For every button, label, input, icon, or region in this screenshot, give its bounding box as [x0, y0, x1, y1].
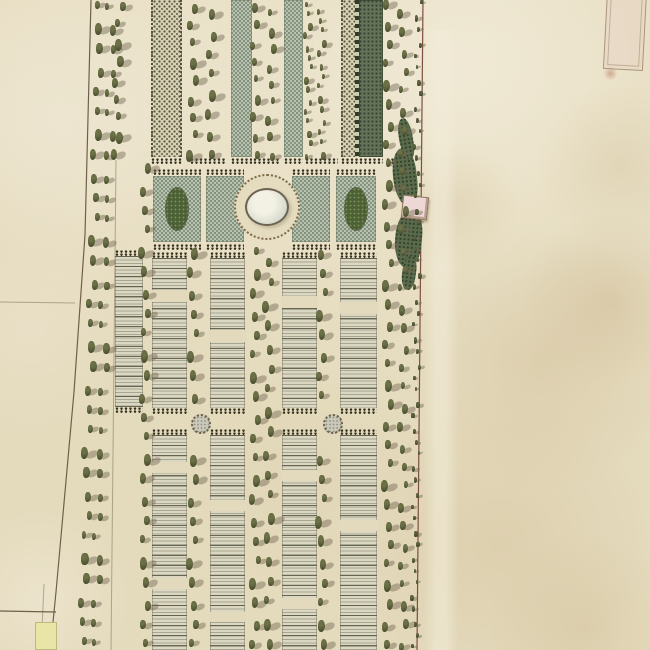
tree: [419, 129, 422, 133]
side-basin: [323, 414, 343, 434]
hedge-cap: [206, 244, 244, 250]
tree: [401, 382, 407, 390]
tree: [206, 50, 213, 60]
tree: [95, 23, 105, 36]
tree: [140, 187, 148, 198]
tree: [105, 195, 111, 204]
tree: [88, 341, 98, 354]
tree: [254, 331, 261, 341]
tree: [417, 171, 421, 177]
tree: [304, 77, 310, 85]
tree: [92, 533, 97, 541]
tree: [192, 394, 200, 405]
tree: [105, 109, 110, 117]
tree: [404, 481, 410, 489]
tree: [308, 55, 313, 61]
tree: [318, 598, 324, 607]
tree: [91, 174, 99, 185]
tree: [99, 427, 104, 435]
tree: [265, 407, 275, 420]
tree: [269, 28, 277, 40]
tree: [400, 445, 407, 455]
tree: [117, 56, 126, 68]
field-line: [74, 235, 85, 392]
tree: [251, 518, 259, 529]
tree: [398, 503, 406, 515]
tree: [403, 544, 410, 554]
tree: [400, 580, 406, 588]
bed-gap: [151, 578, 188, 589]
tree: [186, 558, 196, 571]
tree: [85, 386, 93, 397]
tree: [317, 83, 321, 89]
tree: [414, 569, 418, 574]
tree: [81, 447, 91, 460]
tree: [402, 404, 410, 416]
tree: [97, 555, 105, 567]
tree: [387, 599, 396, 611]
tree: [322, 40, 328, 48]
tree: [412, 466, 417, 473]
tree: [415, 440, 419, 445]
hedge-cap: [336, 244, 376, 250]
tree: [317, 456, 325, 467]
tree: [205, 109, 214, 121]
tree: [254, 20, 262, 31]
tree: [306, 86, 312, 94]
tree: [250, 288, 259, 300]
tree: [264, 619, 274, 632]
tree: [269, 365, 276, 375]
hedge-cap: [253, 158, 280, 164]
tree: [401, 323, 409, 334]
tree: [263, 451, 271, 462]
hedge-cap: [151, 158, 182, 164]
central-basin: [245, 188, 289, 226]
tree: [115, 39, 125, 52]
tree: [103, 237, 111, 249]
bed-hedge-cap: [115, 407, 143, 413]
tree: [144, 516, 151, 526]
orchard-strip-trellis: [151, 0, 182, 157]
hedge-cap: [359, 158, 383, 164]
tree: [98, 68, 106, 79]
tree: [88, 425, 94, 434]
tree: [267, 65, 274, 75]
tree: [384, 580, 394, 593]
parterre-oval: [345, 188, 367, 230]
tree: [383, 140, 390, 150]
tree: [416, 118, 420, 123]
tree: [303, 32, 309, 40]
tree: [104, 151, 111, 162]
tree: [144, 432, 150, 441]
tree: [253, 391, 262, 403]
tree: [193, 474, 202, 486]
tree: [116, 112, 122, 121]
tree: [253, 475, 263, 488]
tree: [188, 498, 196, 509]
tree: [120, 2, 127, 12]
tree: [254, 75, 260, 83]
tree: [410, 595, 415, 602]
tree: [412, 322, 415, 326]
tree: [97, 575, 104, 586]
field-line: [0, 611, 56, 612]
bed-gap: [281, 296, 318, 308]
tree: [140, 557, 150, 570]
tree: [114, 95, 121, 105]
tree: [385, 359, 391, 368]
tree: [142, 206, 149, 216]
tree: [143, 639, 149, 648]
tree: [416, 65, 419, 69]
tree: [399, 86, 405, 94]
tree: [419, 91, 423, 97]
tree: [413, 284, 417, 290]
tree: [93, 193, 100, 203]
tree: [418, 451, 421, 455]
tree: [86, 299, 93, 309]
tree: [253, 453, 259, 462]
tree: [97, 449, 105, 461]
bed-gap: [209, 612, 246, 622]
tree: [268, 9, 274, 17]
tree: [254, 247, 260, 256]
tree: [83, 467, 92, 479]
bed-gap: [281, 470, 318, 481]
tree: [382, 280, 392, 293]
hedge-cap: [336, 169, 376, 175]
tree: [320, 269, 327, 279]
tree: [87, 511, 94, 521]
tree: [110, 25, 118, 37]
tree: [115, 19, 121, 28]
tree: [116, 132, 126, 145]
hedge-cap: [305, 158, 338, 164]
tree: [267, 132, 275, 143]
paper-stain: [535, 80, 650, 250]
tree: [143, 290, 151, 301]
garden-bed-column: [340, 258, 377, 408]
tree: [322, 494, 328, 503]
tree: [254, 621, 262, 632]
tree: [381, 480, 391, 493]
tree: [403, 619, 411, 630]
tree: [253, 537, 260, 547]
tree: [211, 32, 219, 43]
tree: [397, 9, 405, 21]
tree: [417, 311, 421, 316]
tree: [416, 493, 420, 499]
tree: [321, 27, 325, 33]
tree: [384, 499, 393, 511]
tree: [192, 4, 200, 15]
hedge-cap: [190, 158, 226, 164]
tree: [88, 235, 98, 248]
bed-gap: [339, 302, 378, 314]
tree: [105, 215, 110, 223]
paper-stain: [520, 210, 650, 390]
tree: [249, 494, 258, 506]
tree: [97, 469, 104, 480]
tree: [194, 329, 200, 338]
tree: [249, 640, 256, 650]
tree: [266, 557, 274, 568]
garden-bed-column: [152, 258, 187, 408]
tree: [382, 340, 389, 350]
tree: [317, 50, 323, 58]
tree: [105, 3, 110, 11]
tree: [414, 531, 419, 538]
tree: [402, 50, 409, 60]
tree: [190, 370, 199, 382]
tree: [92, 280, 100, 291]
orchard-strip-stipple: [231, 0, 252, 157]
tree: [190, 455, 200, 468]
tree: [189, 639, 195, 648]
tree: [308, 23, 314, 31]
tree: [103, 343, 111, 355]
tree: [388, 399, 397, 411]
tree: [416, 633, 420, 638]
tree: [256, 556, 262, 565]
bed-hedge-cap: [282, 408, 317, 414]
paper-stain: [345, 390, 650, 650]
tree: [110, 131, 118, 143]
tree: [415, 155, 419, 161]
tree: [317, 9, 322, 16]
tree: [141, 413, 148, 423]
tree: [95, 213, 101, 222]
tree: [255, 95, 263, 107]
tree: [309, 140, 315, 148]
tree: [193, 620, 200, 630]
tree: [188, 97, 196, 108]
tree: [90, 361, 99, 373]
tree: [78, 598, 86, 609]
paper-stain: [0, 505, 135, 650]
tree: [111, 70, 118, 80]
boundary-lines: [0, 0, 650, 650]
ink-smudge: [604, 66, 617, 81]
tree: [386, 522, 394, 533]
tree: [265, 384, 271, 393]
hedge-cap: [231, 158, 252, 164]
tree: [193, 75, 202, 87]
tree: [112, 78, 120, 89]
tree: [383, 80, 393, 93]
garden-bed-column: [282, 435, 317, 650]
tree: [268, 490, 274, 499]
tree: [268, 426, 277, 438]
tree: [255, 415, 263, 426]
garden-bed-column: [340, 435, 377, 650]
tree: [266, 258, 273, 268]
tree: [95, 107, 101, 116]
hedge-cap: [292, 244, 330, 250]
tree: [383, 422, 391, 433]
tree: [207, 132, 215, 143]
garden-plan-map: [0, 0, 650, 650]
tree: [411, 505, 415, 510]
tree: [104, 176, 111, 186]
parterre-oval: [166, 188, 188, 230]
survey-rectangle: [603, 0, 647, 71]
tree: [187, 267, 196, 279]
tree: [400, 521, 408, 532]
tree: [307, 11, 311, 17]
tree: [412, 558, 416, 564]
tree: [316, 372, 323, 382]
tree: [399, 364, 405, 373]
tree: [318, 96, 324, 104]
bed-gap: [209, 330, 246, 342]
tree: [111, 45, 118, 56]
tree: [191, 310, 198, 320]
tree: [140, 620, 147, 630]
tree: [420, 0, 423, 4]
tree: [402, 463, 408, 472]
tree: [411, 644, 414, 648]
tree: [319, 329, 328, 341]
tree: [98, 513, 104, 522]
tree: [385, 299, 394, 311]
tree: [414, 107, 418, 113]
tree: [95, 1, 101, 10]
tree: [252, 3, 260, 15]
tree: [191, 601, 199, 612]
tree: [268, 513, 278, 526]
tree: [398, 562, 404, 571]
tree: [264, 596, 270, 605]
tree: [417, 27, 421, 33]
tree: [319, 18, 324, 24]
tree: [189, 577, 198, 589]
tree: [389, 259, 395, 268]
estate-boundary-line: [417, 0, 423, 650]
tree: [307, 131, 313, 139]
tree: [413, 516, 416, 520]
tree: [412, 606, 416, 612]
tree: [386, 99, 395, 111]
tree: [385, 380, 395, 393]
hedge-cap: [284, 158, 303, 164]
bed-gap: [209, 500, 246, 511]
tree: [385, 440, 392, 450]
hedge-cap: [206, 169, 244, 175]
hedge-cap: [153, 169, 201, 175]
tree: [414, 477, 418, 483]
tree: [104, 363, 111, 374]
tree: [319, 475, 326, 485]
tree: [83, 573, 92, 585]
tree: [193, 130, 199, 139]
bed-gap: [151, 290, 188, 302]
tree: [387, 322, 395, 333]
paper-stain: [405, 225, 650, 495]
tree: [385, 22, 393, 33]
tree: [104, 257, 111, 268]
tree: [404, 68, 410, 77]
garden-bed-column: [282, 258, 317, 408]
tree: [416, 402, 421, 409]
tree: [98, 407, 104, 416]
tree: [323, 288, 329, 297]
tree: [304, 109, 309, 115]
tree: [320, 139, 324, 145]
tree: [190, 517, 197, 527]
tree: [187, 21, 194, 31]
tree: [209, 69, 215, 78]
bed-hedge-cap: [340, 408, 377, 414]
tree: [382, 199, 391, 211]
tree: [323, 120, 328, 127]
tree: [193, 536, 199, 545]
tree: [209, 90, 219, 103]
tree: [415, 300, 419, 306]
tree: [191, 248, 201, 261]
tree: [418, 273, 423, 280]
tree: [269, 81, 275, 90]
tree: [319, 391, 325, 400]
tree: [388, 459, 394, 468]
tree: [140, 473, 149, 485]
tree: [190, 38, 196, 47]
tree: [250, 372, 260, 385]
tree: [98, 301, 104, 310]
tree: [104, 282, 111, 292]
bed-gap: [339, 520, 378, 531]
tree: [87, 405, 94, 415]
bed-gap: [151, 462, 188, 473]
side-basin: [191, 414, 211, 434]
bed-hedge-cap: [210, 408, 245, 414]
tree: [269, 278, 275, 287]
tree: [190, 113, 197, 123]
tree: [265, 471, 272, 481]
tree: [320, 106, 326, 114]
tree: [190, 58, 200, 71]
tree: [388, 122, 396, 133]
tree: [111, 149, 120, 161]
tree: [90, 149, 99, 161]
tree: [399, 305, 407, 317]
plan-area: [0, 0, 650, 650]
tree: [250, 350, 256, 359]
orchard-strip-stipple: [284, 0, 303, 157]
tree: [320, 64, 325, 71]
bed-hedge-cap: [152, 408, 187, 414]
tree: [387, 40, 394, 50]
tree: [105, 89, 111, 98]
tree: [384, 222, 392, 233]
tree: [397, 422, 405, 433]
tree: [252, 58, 258, 67]
tree: [322, 74, 327, 80]
hedge-cap: [341, 158, 358, 164]
bed-gap: [281, 598, 318, 609]
tree: [419, 43, 423, 49]
hedge-cap: [153, 244, 201, 250]
tree: [309, 100, 314, 107]
tree: [262, 301, 272, 314]
tree: [271, 97, 277, 105]
garden-bed-column: [115, 256, 143, 407]
tree: [98, 494, 105, 504]
tree: [99, 321, 104, 329]
tree: [399, 643, 406, 650]
